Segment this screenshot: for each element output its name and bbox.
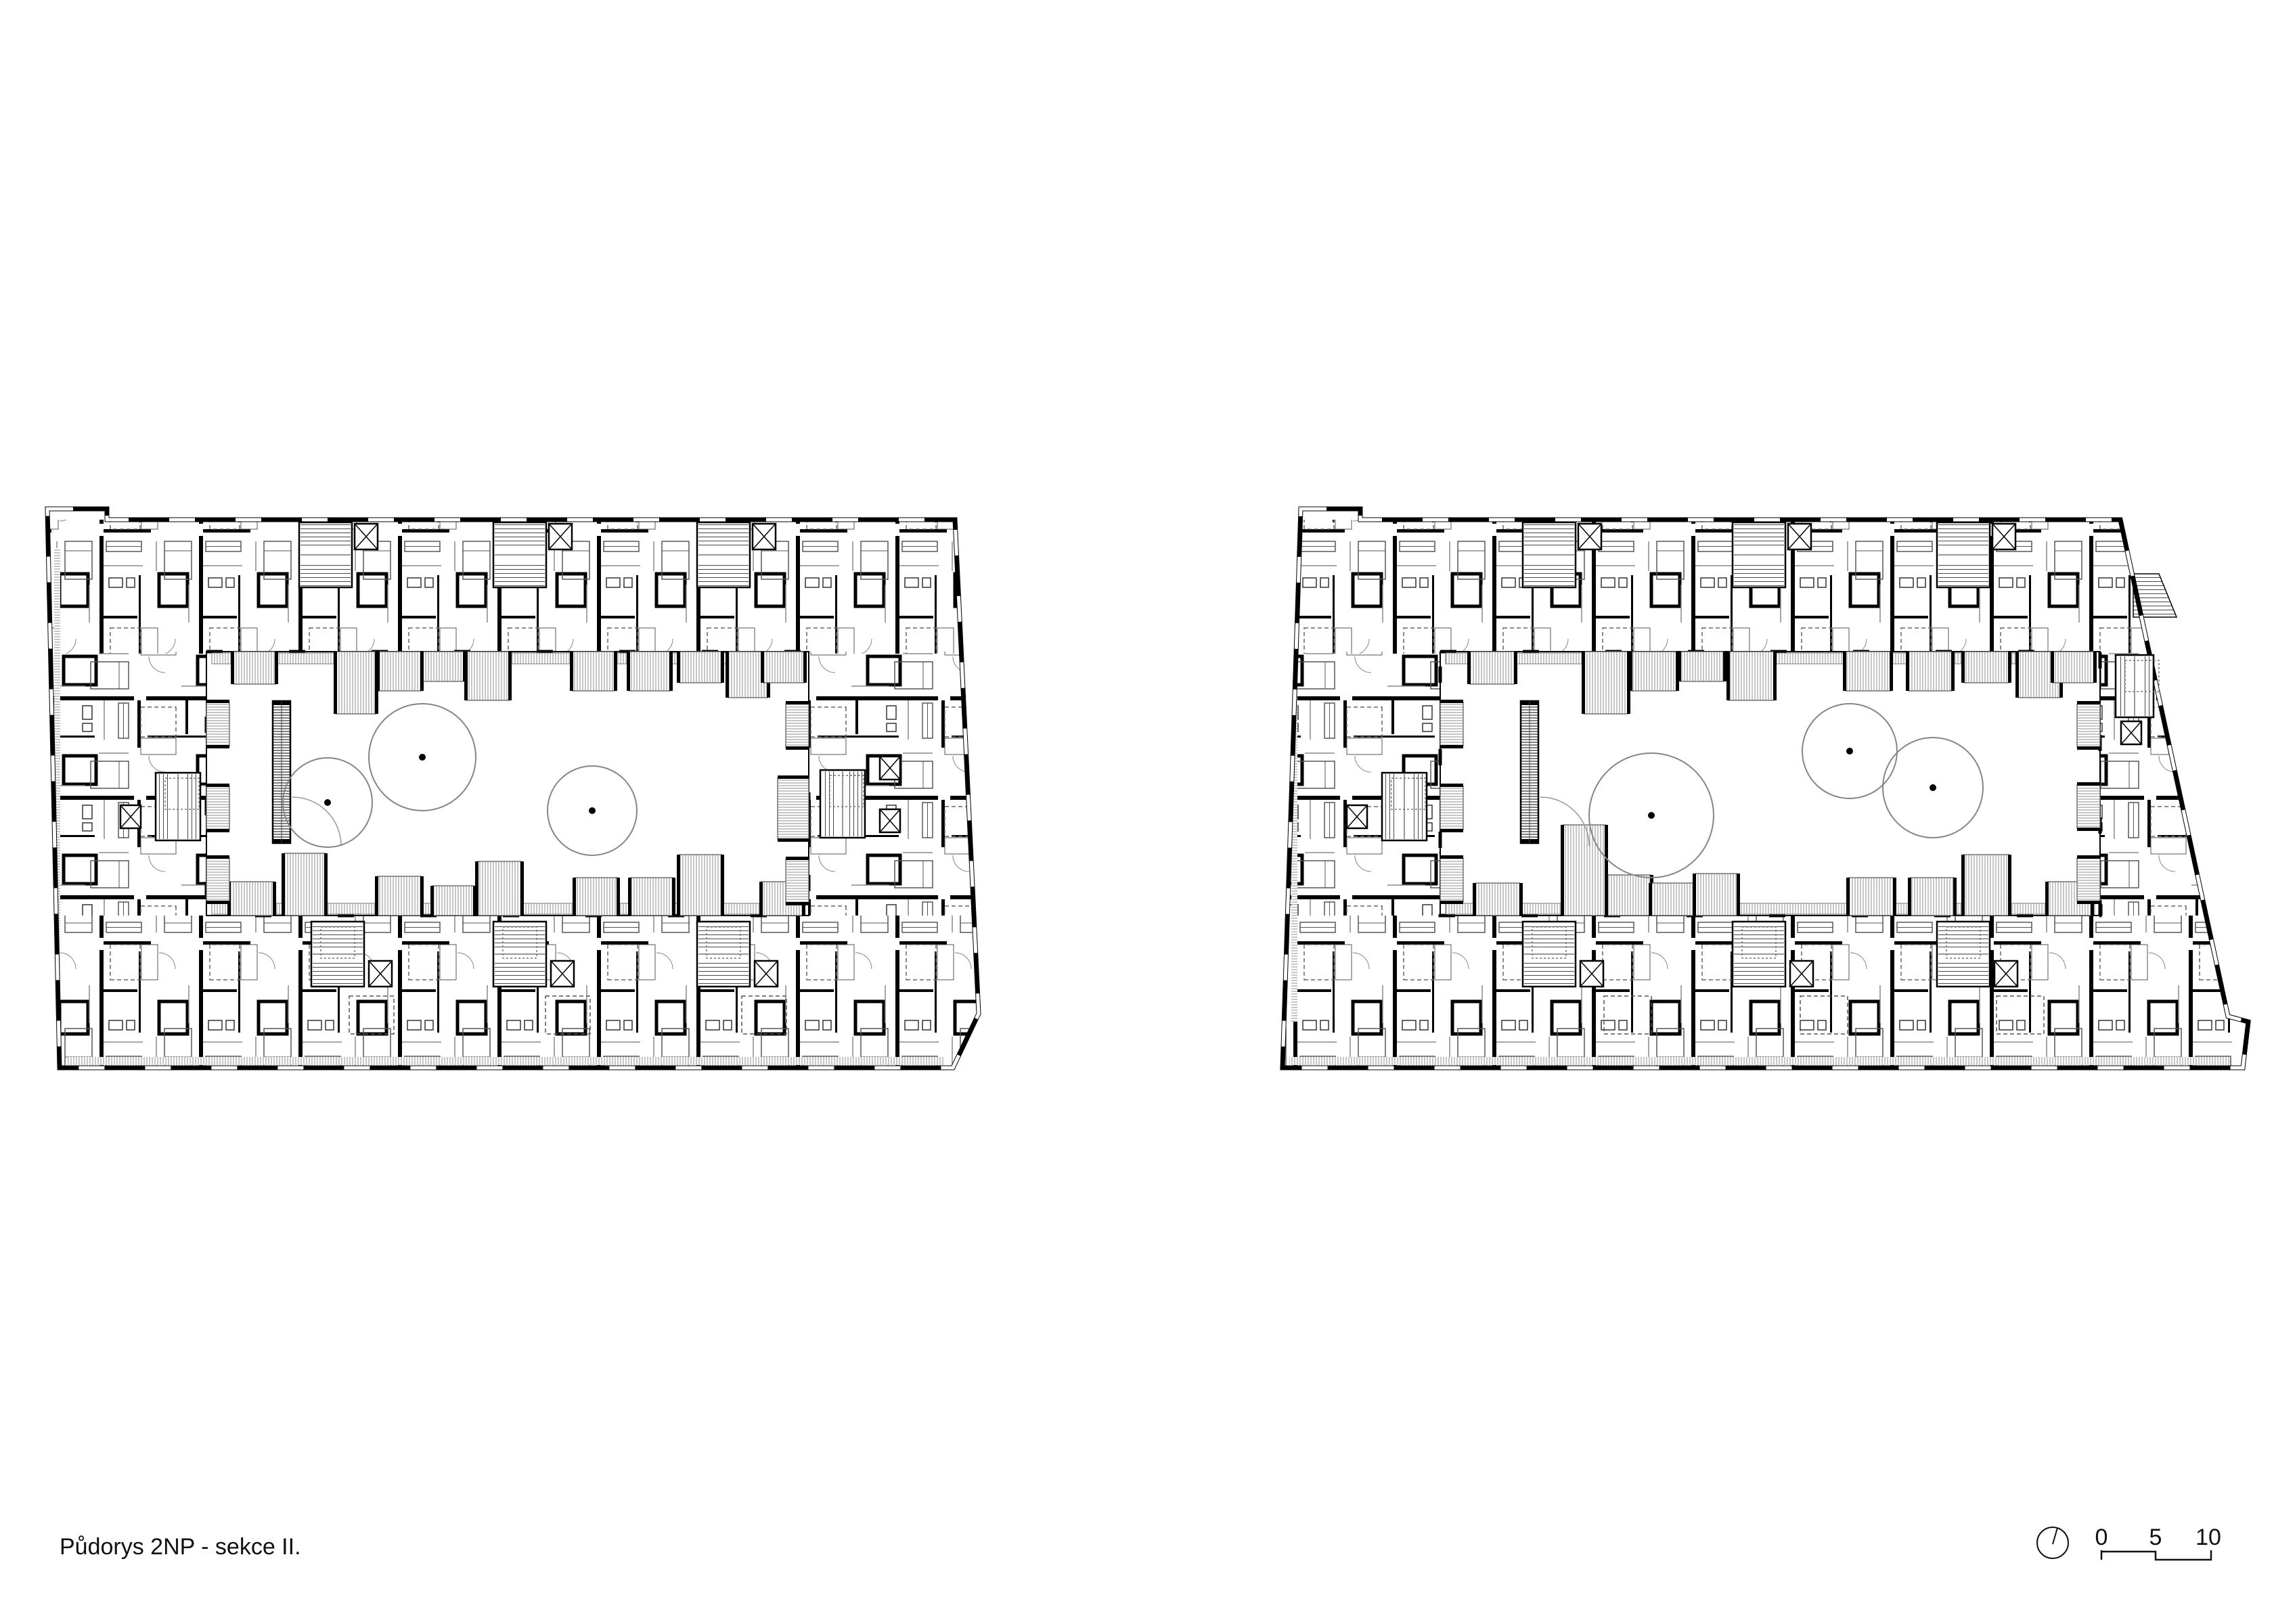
tree-trunk-dot	[1846, 748, 1853, 754]
drawing-canvas: Půdorys 2NP - sekce II. 0 5 10	[0, 0, 2274, 1624]
balcony	[336, 652, 376, 714]
balcony	[2077, 704, 2100, 747]
balcony	[379, 652, 421, 691]
tree-trunk-dot	[589, 807, 596, 814]
balcony	[1440, 702, 1463, 746]
balcony	[1911, 878, 1954, 916]
window-sill-hatch	[68, 1057, 945, 1065]
balcony	[2077, 858, 2100, 901]
balcony	[478, 861, 521, 916]
tree-trunk-dot	[1930, 784, 1936, 791]
balcony	[1729, 652, 1774, 700]
scale-label-10: 10	[2195, 1525, 2221, 1550]
scale-label-0: 0	[2095, 1525, 2108, 1550]
door-swing-arc	[292, 797, 341, 846]
balcony	[378, 876, 421, 916]
balcony	[631, 878, 673, 916]
balcony	[778, 778, 809, 839]
balcony	[575, 878, 617, 916]
balcony	[629, 652, 670, 691]
floor-plan-left	[47, 509, 979, 1068]
scale-bar: 0 5 10	[2037, 1525, 2221, 1560]
title-block: Půdorys 2NP - sekce II.	[60, 1534, 301, 1560]
balcony	[1632, 652, 1676, 691]
balcony	[2077, 785, 2100, 828]
balcony	[1846, 652, 1890, 691]
drawing-title: Půdorys 2NP - sekce II.	[60, 1534, 301, 1560]
balcony	[1964, 855, 2009, 916]
balcony	[1440, 786, 1463, 830]
tree-trunk-dot	[324, 799, 331, 806]
floor-plan-right	[1283, 509, 2248, 1068]
window-sill-hatch	[1289, 1057, 2230, 1065]
balcony	[573, 652, 615, 691]
balcony	[233, 652, 275, 684]
scale-label-5: 5	[2149, 1525, 2162, 1550]
balcony	[433, 886, 474, 916]
balcony	[423, 652, 464, 681]
balcony	[206, 702, 229, 746]
tree-trunk-dot	[419, 754, 426, 761]
north-needle-icon	[2053, 1528, 2057, 1544]
balcony	[1909, 652, 1952, 691]
balcony	[786, 704, 809, 747]
balcony	[1849, 878, 1894, 916]
balcony	[284, 853, 325, 916]
balcony	[206, 786, 229, 830]
balcony	[679, 855, 721, 916]
balcony	[1964, 652, 2009, 683]
tree-trunk-dot	[1648, 812, 1655, 819]
balcony	[786, 859, 809, 903]
scale-bar-rule	[2101, 1550, 2211, 1560]
balcony	[2053, 652, 2094, 683]
floor-plans-group	[47, 509, 2248, 1068]
balcony	[679, 652, 721, 683]
floor-plan-sheet: Půdorys 2NP - sekce II. 0 5 10	[0, 0, 2274, 1624]
balcony	[1607, 875, 1651, 916]
balcony	[467, 652, 509, 700]
balcony	[1475, 883, 1520, 916]
balcony	[1584, 652, 1628, 714]
balcony	[1470, 652, 1515, 684]
balcony	[763, 652, 804, 683]
balcony	[1440, 858, 1463, 901]
balcony	[230, 882, 273, 916]
balcony	[206, 858, 229, 901]
balcony	[1695, 874, 1737, 916]
balcony	[1680, 652, 1724, 681]
balcony	[1563, 825, 1605, 916]
balcony	[1651, 883, 1693, 916]
